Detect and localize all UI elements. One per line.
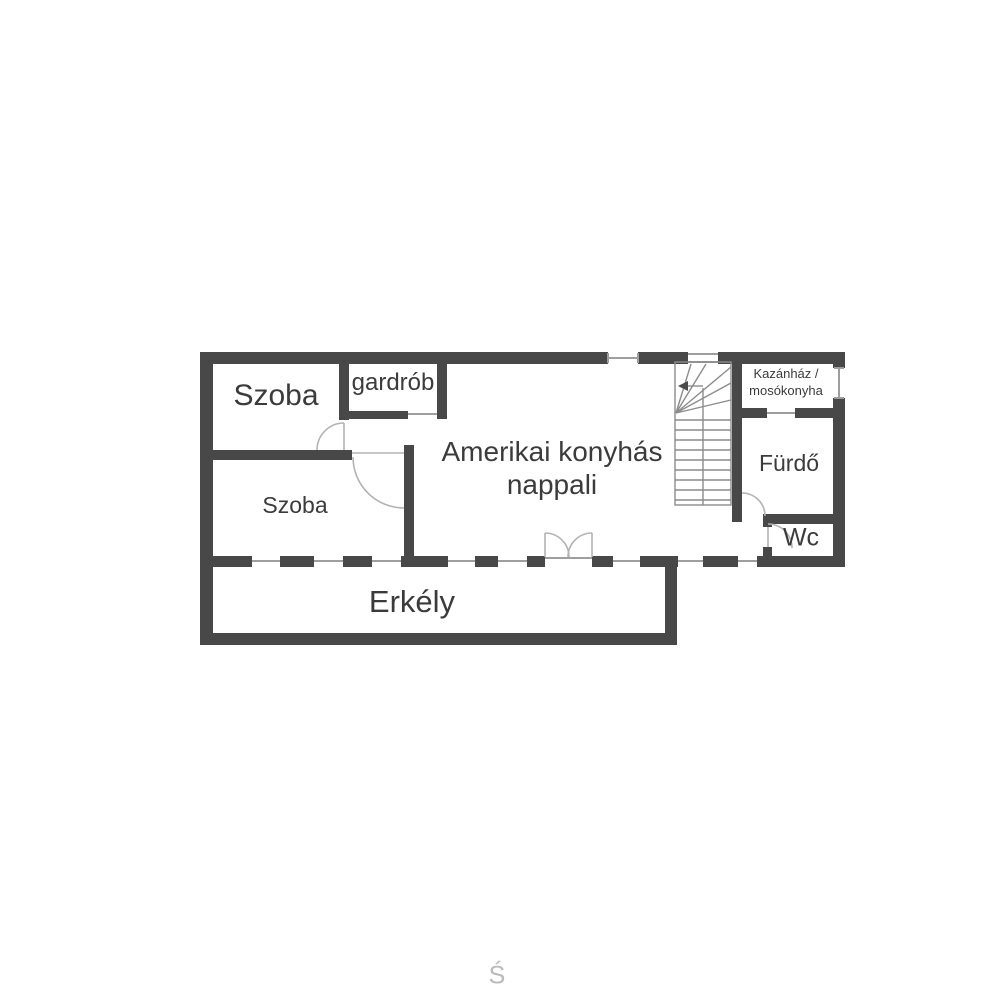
room-label-kazanhaz-line1: Kazánház /: [749, 365, 823, 382]
top-wall-segment: [200, 352, 608, 364]
window-icon: [834, 368, 844, 398]
szoba-divider-wall: [200, 450, 352, 460]
stair-right-wall: [732, 364, 742, 522]
balcony-right-wall: [665, 567, 677, 645]
door-icon: [742, 493, 765, 516]
stair-direction-arrow-icon: [678, 381, 703, 391]
room-label-wc: Wc: [783, 524, 819, 553]
door-icon: [317, 423, 344, 450]
room-label-kazanhaz-line2: mosókonyha: [749, 382, 823, 399]
room-label-nappali-line1: Amerikai konyhás: [442, 435, 663, 468]
room-label-erkely: Erkély: [369, 584, 455, 620]
watermark-logo-icon: Ś: [489, 962, 506, 991]
floorplan-canvas: Szoba gardrób Szoba Amerikai konyhás nap…: [0, 0, 1000, 1000]
bottom-wall-segment: [343, 556, 372, 567]
room-label-nappali-line2: nappali: [442, 468, 663, 501]
double-door-icon: [545, 533, 592, 558]
kazanhaz-bottom-wall: [795, 408, 845, 418]
gardrob-right-wall: [437, 364, 447, 419]
room-label-nappali: Amerikai konyhás nappali: [442, 435, 663, 501]
bottom-wall-segment: [592, 556, 613, 567]
kazanhaz-bottom-wall: [732, 408, 767, 418]
balcony-bottom-wall: [200, 633, 677, 645]
room-label-furdo: Fürdő: [759, 450, 819, 476]
bottom-wall-segment: [640, 556, 678, 567]
door-icon: [352, 453, 404, 508]
left-wall: [200, 352, 213, 645]
top-wall-segment: [718, 352, 845, 364]
bottom-wall-segment: [527, 556, 545, 567]
furdo-bottom-wall: [763, 514, 845, 524]
right-wall-segment: [833, 352, 845, 368]
bottom-wall-segment: [703, 556, 738, 567]
gardrob-bottom-wall: [341, 411, 408, 419]
top-wall-segment: [638, 352, 688, 364]
wc-left-wall: [763, 514, 772, 527]
szoba-nappali-divider-wall: [404, 445, 414, 567]
bottom-wall-segment: [280, 556, 314, 567]
right-wall-segment: [833, 398, 845, 567]
staircase: [675, 362, 731, 505]
bottom-wall-segment: [475, 556, 498, 567]
room-label-kazanhaz: Kazánház / mosókonyha: [749, 365, 823, 399]
room-label-gardrob: gardrób: [352, 369, 435, 397]
bottom-wall-segment: [401, 556, 448, 567]
room-label-szoba-bottom: Szoba: [262, 492, 327, 518]
window-icon: [688, 354, 718, 362]
room-label-szoba-top: Szoba: [233, 379, 318, 414]
window-icon: [608, 353, 638, 363]
wc-bottom-wall: [757, 556, 845, 567]
bottom-wall-segment: [200, 556, 252, 567]
